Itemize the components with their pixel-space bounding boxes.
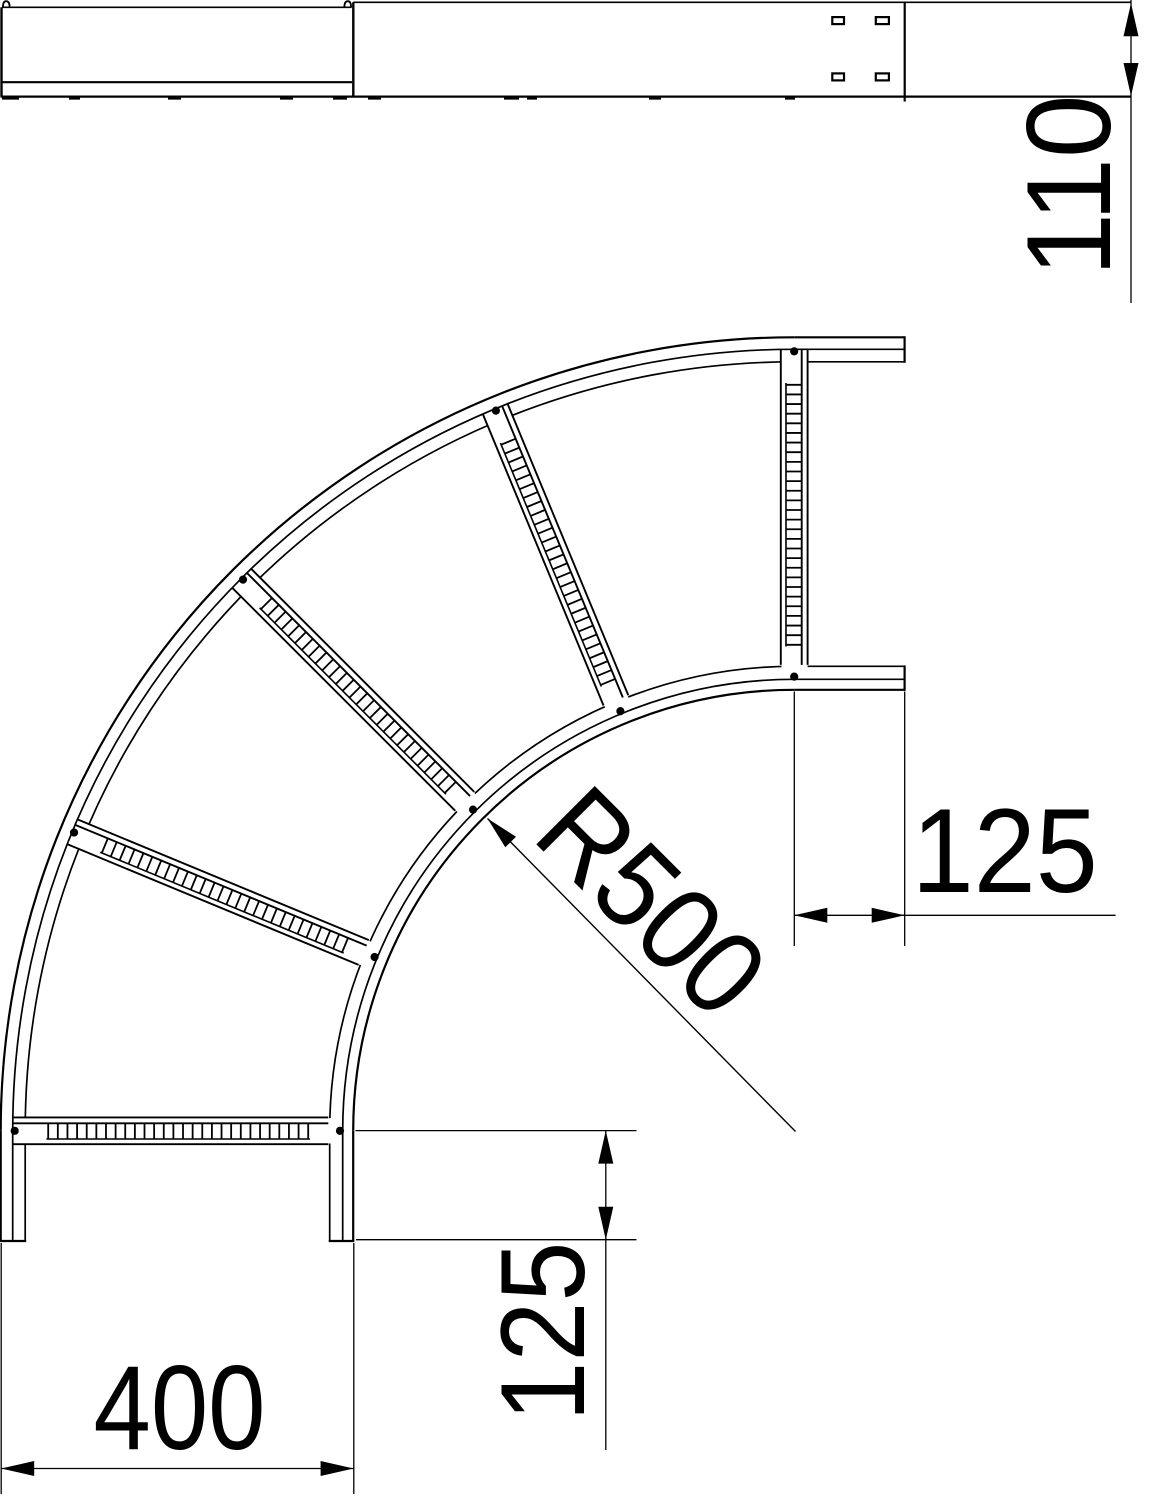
svg-text:110: 110 — [1002, 95, 1136, 277]
svg-text:125: 125 — [912, 784, 1098, 918]
svg-text:400: 400 — [94, 1341, 266, 1475]
svg-text:125: 125 — [476, 1242, 610, 1422]
